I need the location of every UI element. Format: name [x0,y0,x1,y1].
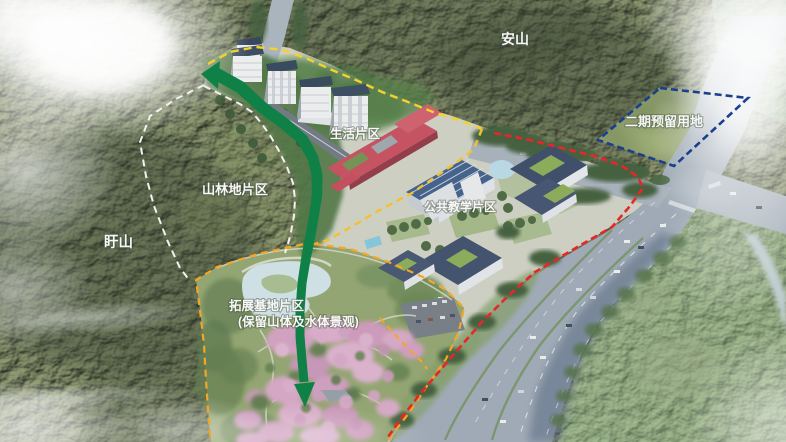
svg-text:安山: 安山 [501,31,529,47]
svg-text:盱山: 盱山 [104,234,133,251]
svg-text:(保留山体及水体景观): (保留山体及水体景观) [238,314,359,329]
svg-text:生活片区: 生活片区 [330,126,381,141]
svg-text:二期预留用地: 二期预留用地 [625,114,703,129]
svg-text:山林地片区: 山林地片区 [202,181,268,197]
svg-text:公共教学片区: 公共教学片区 [424,199,496,214]
svg-text:拓展基地片区: 拓展基地片区 [229,298,305,313]
